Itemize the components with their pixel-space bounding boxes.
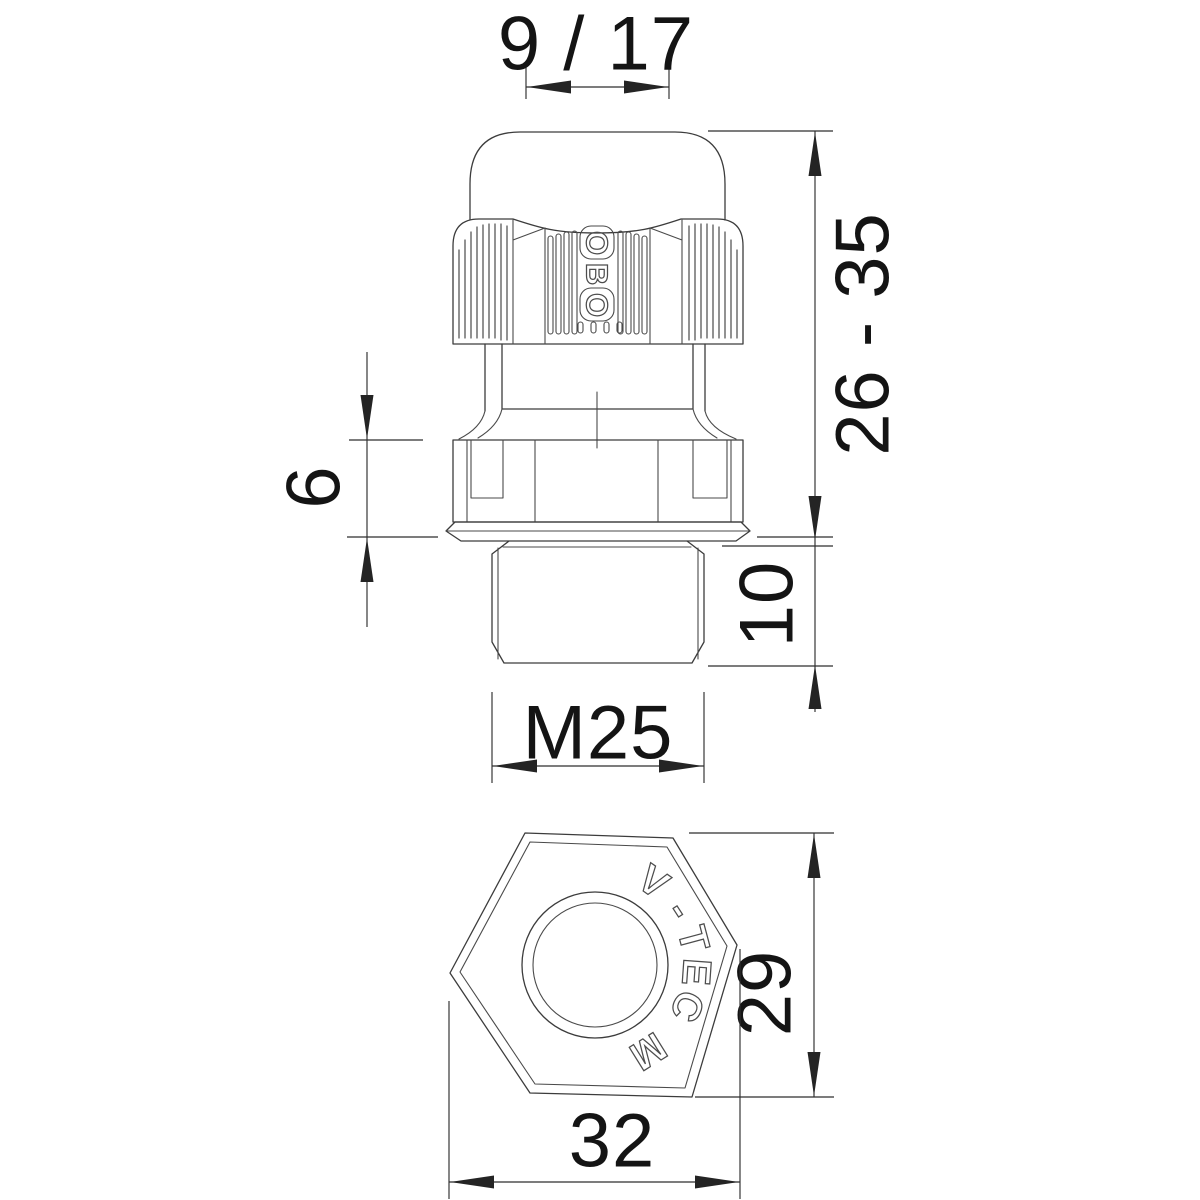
arrowhead-up (361, 538, 374, 582)
dim-label-thread-length: 10 (725, 561, 810, 648)
dim-thread-length: 10 (708, 546, 833, 709)
mid-slot (618, 231, 623, 334)
obo-letter-b: B (580, 263, 615, 285)
mid-slot (626, 232, 631, 334)
vtec-letter-v: V (629, 856, 676, 908)
dim-label-hex-height: 29 (723, 950, 808, 1037)
locknut-outline (453, 440, 743, 522)
dim-label-clamping-range: 9 / 17 (498, 2, 694, 87)
mid-slot (572, 231, 577, 334)
obo-logo: O B O (578, 226, 622, 333)
obo-letter-o2: O (580, 293, 615, 317)
technical-drawing-page: O B O (0, 0, 1200, 1200)
arrowhead-up (809, 132, 822, 176)
dim-collar-height: 6 (272, 352, 439, 627)
vtec-letter-e: E (673, 957, 719, 987)
cable-gland-drawing: O B O (0, 0, 1200, 1200)
mid-slot (548, 236, 553, 334)
mid-slot (642, 236, 647, 334)
arrowhead-up (809, 665, 822, 709)
bore-inner-circle (533, 903, 657, 1027)
knurl-ribs-right (689, 224, 737, 340)
obo-letter-o1: O (580, 231, 615, 255)
arrowhead-down (809, 496, 822, 540)
locknut (453, 440, 743, 522)
dim-thread-size: M25 (492, 691, 704, 784)
vtec-letter-c: C (661, 984, 713, 1028)
dim-clamping-range: 9 / 17 (498, 2, 694, 100)
dim-label-thread-size: M25 (523, 691, 674, 776)
mid-slot (556, 234, 561, 334)
thread-stub (492, 541, 704, 663)
cert-mark (591, 322, 596, 333)
arrowhead-down (361, 395, 374, 439)
knurl-ribs-left (459, 224, 507, 340)
dome-cap-outline (470, 132, 725, 220)
dim-label-hex-width: 32 (569, 1099, 656, 1184)
dim-label-collar-height: 6 (272, 465, 357, 508)
flange (446, 522, 750, 541)
neck-outline (485, 344, 705, 411)
locknut-slots (471, 440, 727, 498)
dim-hex-width: 32 (449, 949, 740, 1199)
cert-mark (604, 322, 609, 333)
mid-slot (564, 232, 569, 334)
locknut-facets (467, 440, 731, 522)
dim-label-height-range: 26 - 35 (821, 212, 906, 456)
side-view: O B O (446, 132, 750, 663)
cert-mark (578, 322, 583, 333)
arrowhead-right (695, 1176, 739, 1189)
vtec-letter-dash: - (658, 892, 702, 927)
thread-inner-lines (498, 547, 698, 659)
bore-outer-circle (522, 892, 668, 1038)
vtec-letter-t: T (669, 922, 718, 957)
vtec-letter-m: M (622, 1024, 674, 1079)
mid-slot (634, 234, 639, 334)
arrowhead-down (808, 1052, 821, 1096)
cert-marks (578, 322, 622, 333)
arrowhead-left (450, 1176, 494, 1189)
arrowhead-up (808, 834, 821, 878)
bottom-view: V - T E C M (450, 833, 737, 1097)
thread-outline (492, 541, 704, 663)
